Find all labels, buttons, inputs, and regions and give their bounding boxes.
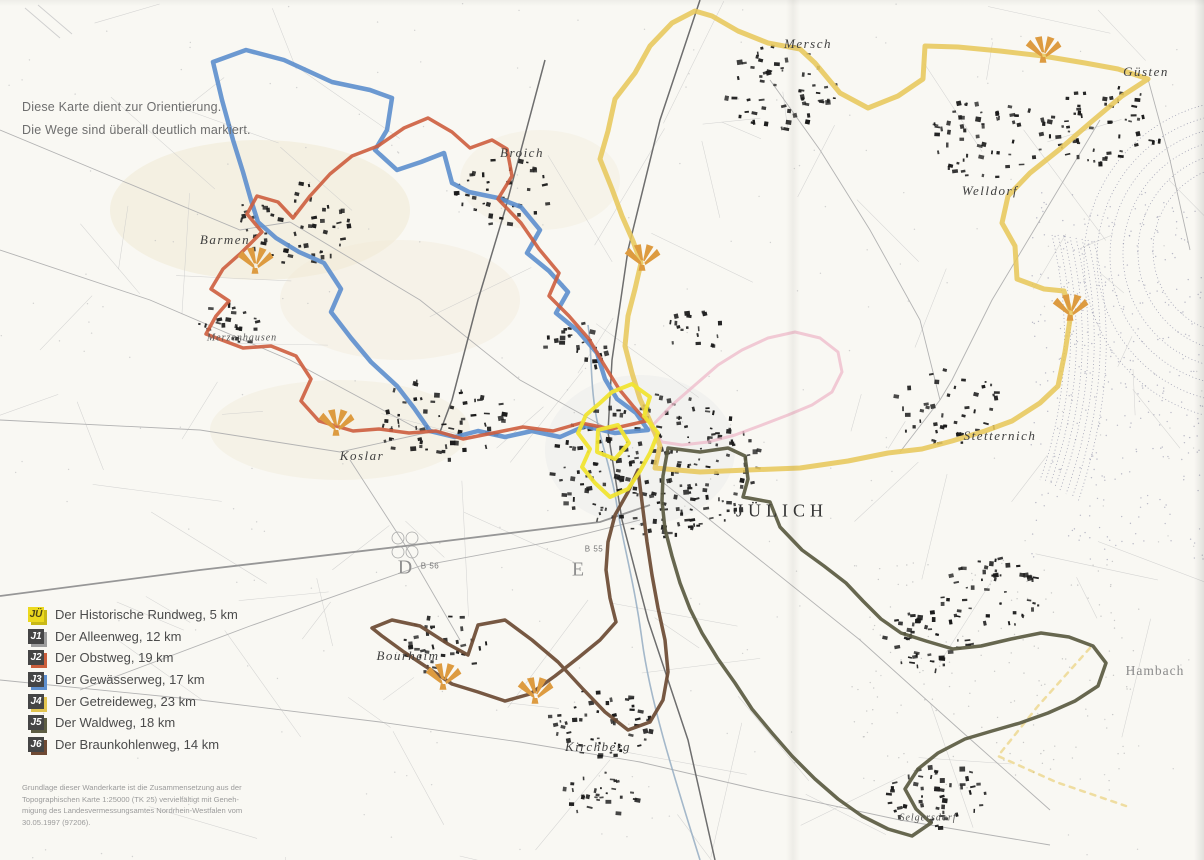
trail-badge-id: J5 [28, 715, 44, 730]
trail-badge: J4 [28, 694, 44, 709]
trail-badge: J1 [28, 629, 44, 644]
legend-item-label: Der Braunkohlenweg, 14 km [55, 737, 219, 752]
trail-badge: J5 [28, 715, 44, 730]
trail-badge-id: JÜ [28, 607, 44, 622]
trail-route-waldweg [662, 448, 1106, 836]
trail-badge: J3 [28, 672, 44, 687]
wanderkarte-page: BarmenMerzenhausenKoslarBroichJÜLICHMers… [0, 0, 1204, 860]
highway [0, 505, 650, 596]
legend-item-label: Der Getreideweg, 23 km [55, 694, 196, 709]
legend-item: JÜ Der Historische Rundweg, 5 km [28, 604, 238, 626]
credit-line: Topographischen Karte 1:25000 (TK 25) ve… [22, 794, 282, 806]
trail-badge: JÜ [28, 607, 44, 622]
legend-item-label: Der Historische Rundweg, 5 km [55, 607, 238, 622]
legend-item: J2 Der Obstweg, 19 km [28, 647, 238, 669]
credit-line: migung des Landesvermessungsamtes Nordrh… [22, 805, 282, 817]
credit-line: Grundlage dieser Wanderkarte ist die Zus… [22, 782, 282, 794]
fan-markers [238, 36, 1089, 703]
trail-badge-id: J6 [28, 737, 44, 752]
orientation-note: Diese Karte dient zur Orientierung. Die … [22, 96, 251, 142]
legend-item: J3 Der Gewässerweg, 17 km [28, 669, 238, 691]
orientation-note-line2: Die Wege sind überall deutlich markiert. [22, 119, 251, 142]
orientation-fan-icon [1053, 294, 1089, 320]
trail-badge: J6 [28, 737, 44, 752]
map-credit: Grundlage dieser Wanderkarte ist die Zus… [22, 782, 282, 828]
trail-badge-id: J1 [28, 629, 44, 644]
legend-item-label: Der Obstweg, 19 km [55, 650, 174, 665]
trail-badge-id: J2 [28, 650, 44, 665]
trail-badge: J2 [28, 650, 44, 665]
trail-badge-id: J4 [28, 694, 44, 709]
trail-legend: JÜ Der Historische Rundweg, 5 km J1 Der … [28, 604, 238, 755]
trail-badge-id: J3 [28, 672, 44, 687]
legend-item: J5 Der Waldweg, 18 km [28, 712, 238, 734]
credit-line: 30.05.1997 (97206). [22, 817, 282, 829]
legend-item-label: Der Gewässerweg, 17 km [55, 672, 205, 687]
legend-item: J1 Der Alleenweg, 12 km [28, 626, 238, 648]
legend-item: J6 Der Braunkohlenweg, 14 km [28, 734, 238, 756]
orientation-fan-icon [625, 244, 661, 270]
legend-item-label: Der Waldweg, 18 km [55, 715, 175, 730]
trail-route-getreideweg-dashed [998, 648, 1126, 806]
orientation-note-line1: Diese Karte dient zur Orientierung. [22, 96, 251, 119]
legend-item-label: Der Alleenweg, 12 km [55, 629, 181, 644]
legend-item: J4 Der Getreideweg, 23 km [28, 690, 238, 712]
